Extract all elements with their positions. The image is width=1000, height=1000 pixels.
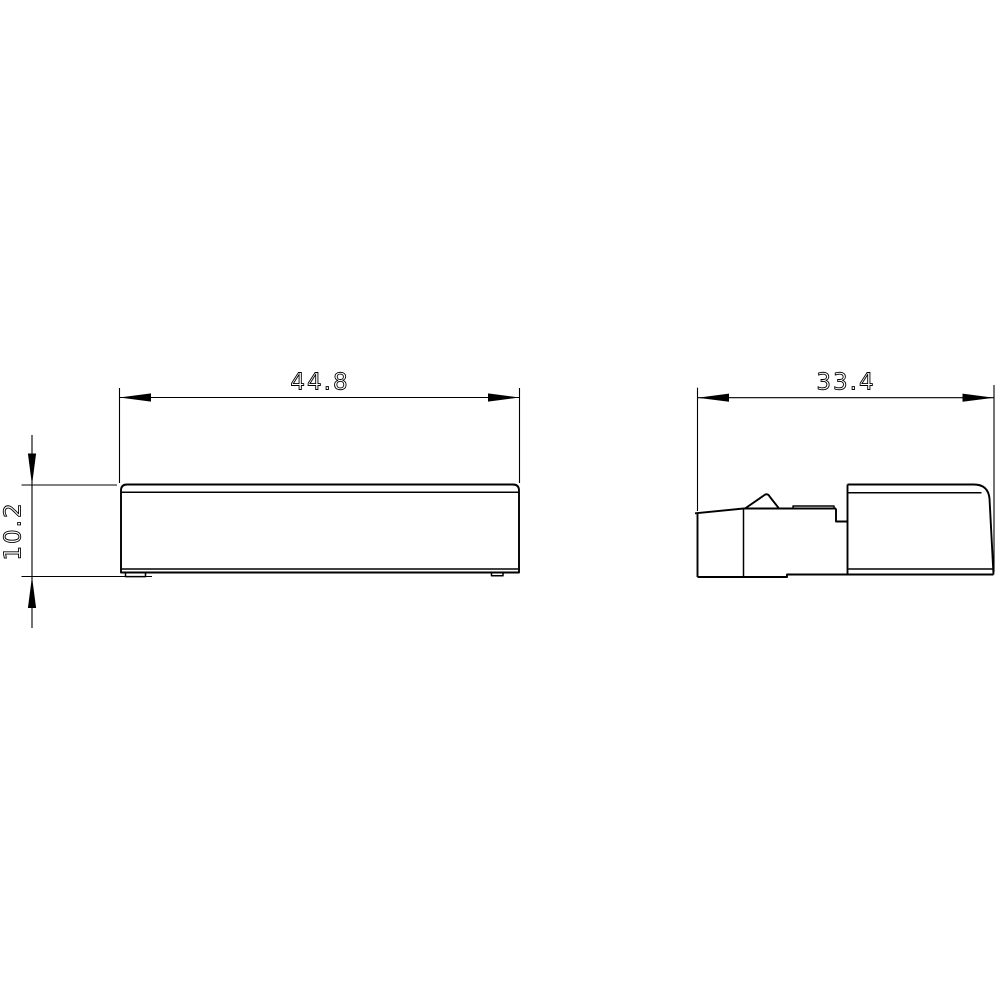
- dimension-height: 10.2: [1, 435, 153, 628]
- dimension-side-depth: 33.4: [698, 370, 995, 573]
- side-view-bottom-edge: [698, 575, 994, 578]
- side-view-block-top-edge: [848, 485, 994, 575]
- depth-arrowhead-left: [698, 394, 730, 402]
- height-arrowhead-bottom: [28, 577, 36, 609]
- drawing-page: 44.8 33.4 10.2: [0, 0, 1000, 1000]
- width-arrowhead-left: [120, 393, 152, 401]
- height-dimension-value: 10.2: [1, 501, 27, 560]
- width-arrowhead-right: [488, 393, 520, 401]
- front-view-body-outline: [121, 485, 519, 573]
- height-arrowhead-top: [28, 454, 36, 486]
- width-dimension-value: 44.8: [290, 370, 349, 396]
- side-view-latch-bump: [745, 494, 779, 508]
- technical-drawing-canvas: 44.8 33.4 10.2: [0, 0, 1000, 1000]
- dimension-front-width: 44.8: [120, 370, 520, 484]
- front-view: [121, 485, 519, 577]
- side-view-wedge-top-edge: [695, 509, 744, 514]
- depth-dimension-value: 33.4: [816, 370, 875, 396]
- side-view-step-notch: [836, 509, 848, 522]
- side-view: [695, 485, 994, 578]
- depth-arrowhead-right: [963, 394, 995, 402]
